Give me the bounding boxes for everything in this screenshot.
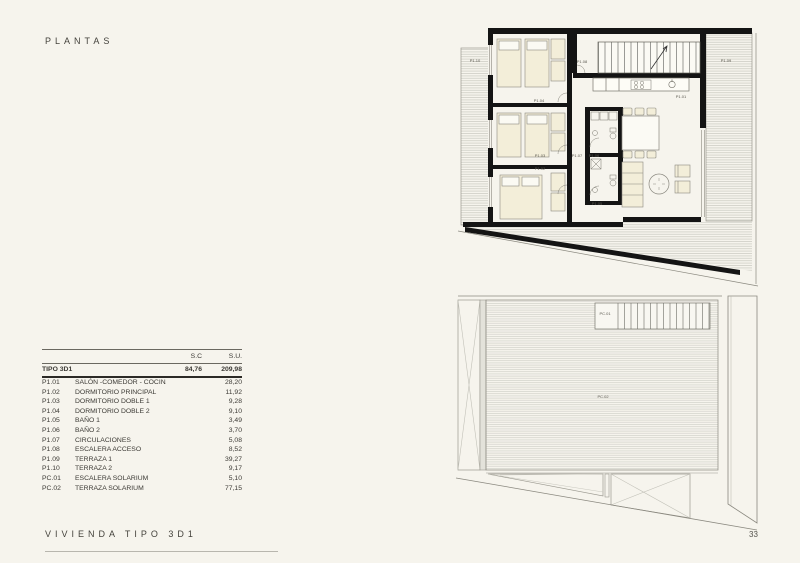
row-name: CIRCULACIONES bbox=[75, 436, 166, 446]
row-su: 11,92 bbox=[202, 388, 242, 398]
living-furniture bbox=[622, 108, 690, 207]
side-channel bbox=[480, 300, 486, 470]
row-name: DORMITORIO DOBLE 2 bbox=[75, 407, 166, 417]
row-su: 5,08 bbox=[202, 436, 242, 446]
upper-floor-plan: P1.10 P1.08 P1.09 P1.04 P1.01 P1.03 P1.0… bbox=[455, 25, 770, 290]
sofa bbox=[622, 162, 643, 207]
row-name: SALÓN -COMEDOR - COCINA bbox=[75, 378, 166, 388]
toilet-icon bbox=[610, 175, 616, 179]
bottom-brace-band bbox=[456, 473, 757, 530]
dining-table bbox=[622, 116, 659, 150]
room-label: P1.07 bbox=[572, 153, 583, 158]
armchair bbox=[675, 181, 690, 193]
room-label: P1.05 bbox=[592, 201, 603, 206]
row-sc bbox=[166, 378, 202, 388]
row-name: TERRAZA SOLARIUM bbox=[75, 484, 166, 494]
area-table: S.C S.U. TIPO 3D1 84,76 209,98 P1.01SALÓ… bbox=[42, 349, 242, 493]
left-brace-panel bbox=[458, 300, 480, 470]
room-label: PC.01 bbox=[599, 311, 611, 316]
row-name: ESCALERA SOLARIUM bbox=[75, 474, 166, 484]
row-code: P1.04 bbox=[42, 407, 75, 417]
header-name bbox=[75, 350, 166, 363]
row-su: 8,52 bbox=[202, 445, 242, 455]
row-sc bbox=[166, 416, 202, 426]
row-su: 3,49 bbox=[202, 416, 242, 426]
toilet-icon bbox=[610, 128, 616, 132]
row-code: PC.01 bbox=[42, 474, 75, 484]
row-name: DORMITORIO DOBLE 1 bbox=[75, 397, 166, 407]
row-code: P1.01 bbox=[42, 378, 75, 388]
row-name: ESCALERA ACCESO bbox=[75, 445, 166, 455]
row-sc bbox=[166, 407, 202, 417]
summary-code: TIPO 3D1 bbox=[42, 364, 75, 376]
row-sc bbox=[166, 388, 202, 398]
row-su: 9,28 bbox=[202, 397, 242, 407]
bedroom-furniture bbox=[497, 39, 565, 219]
room-label: P1.04 bbox=[534, 98, 545, 103]
row-su: 77,15 bbox=[202, 484, 242, 494]
room-label: P1.06 bbox=[589, 153, 600, 158]
room-label: P1.08 bbox=[577, 59, 588, 64]
table-row: P1.03DORMITORIO DOBLE 19,28 bbox=[42, 397, 242, 407]
table-header-row: S.C S.U. bbox=[42, 349, 242, 364]
footer-title: VIVIENDA TIPO 3D1 bbox=[45, 529, 197, 539]
row-name: TERRAZA 2 bbox=[75, 464, 166, 474]
table-row: PC.01ESCALERA SOLARIUM5,10 bbox=[42, 474, 242, 484]
room-label: P1.03 bbox=[535, 153, 546, 158]
row-su: 9,10 bbox=[202, 407, 242, 417]
table-row: P1.06BAÑO 23,70 bbox=[42, 426, 242, 436]
row-name: TERRAZA 1 bbox=[75, 455, 166, 465]
row-name: BAÑO 2 bbox=[75, 426, 166, 436]
row-code: P1.05 bbox=[42, 416, 75, 426]
row-name: BAÑO 1 bbox=[75, 416, 166, 426]
room-label: PC.02 bbox=[597, 394, 609, 399]
summary-su: 209,98 bbox=[202, 364, 242, 376]
row-sc bbox=[166, 397, 202, 407]
armchair bbox=[675, 165, 690, 177]
row-su: 39,27 bbox=[202, 455, 242, 465]
row-sc bbox=[166, 445, 202, 455]
right-strip bbox=[728, 296, 757, 523]
row-sc bbox=[166, 455, 202, 465]
room-label: P1.01 bbox=[676, 94, 687, 99]
header-code bbox=[42, 350, 75, 363]
stairs-solarium bbox=[595, 303, 710, 329]
table-row: P1.04DORMITORIO DOBLE 29,10 bbox=[42, 407, 242, 417]
row-sc bbox=[166, 426, 202, 436]
row-code: P1.08 bbox=[42, 445, 75, 455]
row-code: P1.10 bbox=[42, 464, 75, 474]
solarium-plan: PC.01 PC.02 bbox=[455, 292, 770, 535]
row-code: P1.02 bbox=[42, 388, 75, 398]
row-code: P1.06 bbox=[42, 426, 75, 436]
header-sc: S.C bbox=[166, 350, 202, 363]
row-sc bbox=[166, 464, 202, 474]
table-summary-row: TIPO 3D1 84,76 209,98 bbox=[42, 364, 242, 378]
kitchen-counter bbox=[593, 78, 689, 91]
row-sc bbox=[166, 436, 202, 446]
page-title: PLANTAS bbox=[45, 36, 113, 46]
row-code: PC.02 bbox=[42, 484, 75, 494]
table-row: P1.08ESCALERA ACCESO8,52 bbox=[42, 445, 242, 455]
row-su: 5,10 bbox=[202, 474, 242, 484]
row-sc bbox=[166, 474, 202, 484]
row-su: 9,17 bbox=[202, 464, 242, 474]
coffee-table bbox=[649, 174, 669, 194]
terrace-band-area bbox=[465, 222, 752, 271]
row-code: P1.03 bbox=[42, 397, 75, 407]
outer-diagonal bbox=[456, 478, 757, 530]
table-row: P1.01SALÓN -COMEDOR - COCINA28,20 bbox=[42, 378, 242, 388]
footer-rule bbox=[45, 551, 278, 552]
table-row: PC.02TERRAZA SOLARIUM77,15 bbox=[42, 484, 242, 494]
table-row: P1.09TERRAZA 139,27 bbox=[42, 455, 242, 465]
summary-name bbox=[75, 364, 166, 376]
header-su: S.U. bbox=[202, 350, 242, 363]
room-label: P1.02 bbox=[535, 166, 546, 171]
terrace-2-area bbox=[461, 48, 489, 225]
row-su: 3,70 bbox=[202, 426, 242, 436]
row-sc bbox=[166, 484, 202, 494]
row-su: 28,20 bbox=[202, 378, 242, 388]
room-label: P1.10 bbox=[470, 58, 481, 63]
table-row: P1.05BAÑO 13,49 bbox=[42, 416, 242, 426]
table-row: P1.07CIRCULACIONES5,08 bbox=[42, 436, 242, 446]
row-code: P1.07 bbox=[42, 436, 75, 446]
table-row: P1.10TERRAZA 29,17 bbox=[42, 464, 242, 474]
room-label: P1.09 bbox=[721, 58, 732, 63]
row-name: DORMITORIO PRINCIPAL bbox=[75, 388, 166, 398]
basin-icon bbox=[593, 131, 598, 136]
row-code: P1.09 bbox=[42, 455, 75, 465]
summary-sc: 84,76 bbox=[166, 364, 202, 376]
stairs-access bbox=[598, 42, 700, 73]
table-row: P1.02DORMITORIO PRINCIPAL11,92 bbox=[42, 388, 242, 398]
